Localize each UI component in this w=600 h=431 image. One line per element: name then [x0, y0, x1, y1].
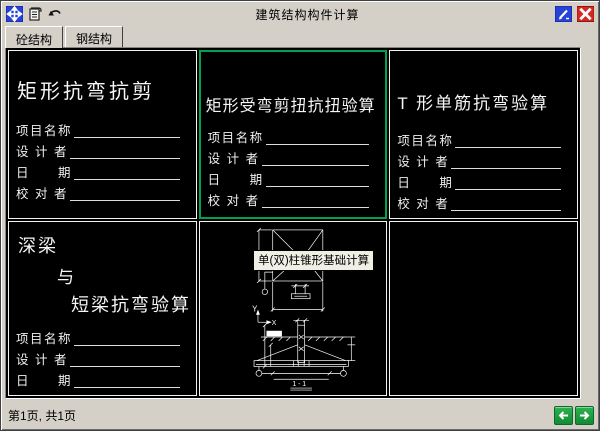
field-label: 设 计 者: [16, 353, 68, 367]
field-blank-line: [266, 174, 370, 187]
card-title: 矩形抗弯抗剪: [17, 75, 196, 104]
field-label: 日 期: [397, 176, 453, 190]
next-page-button[interactable]: [575, 406, 594, 425]
card-empty[interactable]: [389, 221, 578, 396]
field-blank-line: [74, 125, 180, 138]
field-blank-line: [262, 153, 370, 166]
move-icon[interactable]: [6, 6, 23, 22]
field-label: 项目名称: [397, 134, 453, 148]
card-deep-beam[interactable]: 深梁 与 短梁抗弯验算 项目名称 设 计 者 日 期 校 对 者: [8, 221, 197, 396]
axis-x-label: X: [271, 320, 276, 327]
field-label: 校 对 者: [16, 187, 68, 201]
field-label: 校 对 者: [16, 395, 68, 396]
axis-y-label: Y: [252, 304, 258, 313]
field-label: 校 对 者: [397, 197, 449, 211]
field-blank-line: [262, 195, 370, 208]
field-blank-line: [451, 198, 561, 211]
field-blank-line: [74, 333, 180, 346]
field-blank-line: [70, 354, 180, 367]
tooltip: 单(双)柱锥形基础计算: [253, 250, 374, 271]
tab-steel[interactable]: 钢结构: [65, 26, 123, 47]
field-blank-line: [266, 132, 370, 145]
tab-bar: 砼结构 钢结构: [5, 26, 125, 47]
field-label: 日 期: [208, 173, 264, 187]
card-rect-torsion[interactable]: 矩形受弯剪扭抗扭验算 项目名称 设 计 者 日 期 校 对 者: [199, 50, 388, 219]
card-title: T 形单筋抗弯验算: [397, 89, 577, 114]
section-label: 1 - 1: [292, 381, 306, 388]
scroll-icon[interactable]: [26, 6, 43, 22]
page-info: 第1页, 共1页: [8, 407, 76, 424]
field-blank-line: [74, 375, 180, 388]
field-label: 项目名称: [16, 124, 72, 138]
field-blank-line: [74, 167, 180, 180]
card-title-line2: 与: [57, 263, 196, 288]
close-icon[interactable]: [577, 6, 594, 22]
foundation-drawing: Y X 1 - 1: [200, 222, 387, 395]
field-label: 设 计 者: [16, 145, 68, 159]
template-grid: 矩形抗弯抗剪 项目名称 设 计 者 日 期 校 对 者 矩形受弯剪扭抗扭验算 项…: [5, 47, 581, 399]
card-title-line1: 深梁: [18, 232, 196, 258]
field-label: 日 期: [16, 166, 72, 180]
card-foundation-calc[interactable]: Y X 1 - 1: [199, 221, 388, 396]
field-label: 设 计 者: [208, 152, 260, 166]
field-label: 校 对 者: [208, 194, 260, 208]
axis-marker: [256, 310, 270, 323]
section-view: [254, 318, 355, 390]
field-blank-line: [70, 188, 180, 201]
field-blank-line: [455, 135, 561, 148]
field-blank-line: [451, 156, 561, 169]
card-t-single-rebar[interactable]: T 形单筋抗弯验算 项目名称 设 计 者 日 期 校 对 者: [389, 50, 578, 219]
window-title: 建筑结构构件计算: [63, 6, 552, 23]
edit-icon[interactable]: [555, 6, 572, 22]
field-blank-line: [455, 177, 561, 190]
card-rect-bend-shear[interactable]: 矩形抗弯抗剪 项目名称 设 计 者 日 期 校 对 者: [8, 50, 197, 219]
field-label: 设 计 者: [397, 155, 449, 169]
field-label: 项目名称: [16, 332, 72, 346]
tab-concrete[interactable]: 砼结构: [5, 26, 63, 48]
app-window: 建筑结构构件计算 砼结构 钢结构: [0, 0, 600, 431]
prev-page-button[interactable]: [554, 406, 573, 425]
field-label: 日 期: [16, 374, 72, 388]
statusbar: 第1页, 共1页: [3, 401, 597, 429]
field-blank-line: [70, 146, 180, 159]
card-title: 矩形受弯剪扭抗扭验算: [206, 92, 386, 116]
field-label: 项目名称: [208, 131, 264, 145]
card-title-line3: 短梁抗弯验算: [71, 291, 196, 317]
undo-icon[interactable]: [46, 6, 63, 22]
titlebar: 建筑结构构件计算: [3, 3, 597, 25]
